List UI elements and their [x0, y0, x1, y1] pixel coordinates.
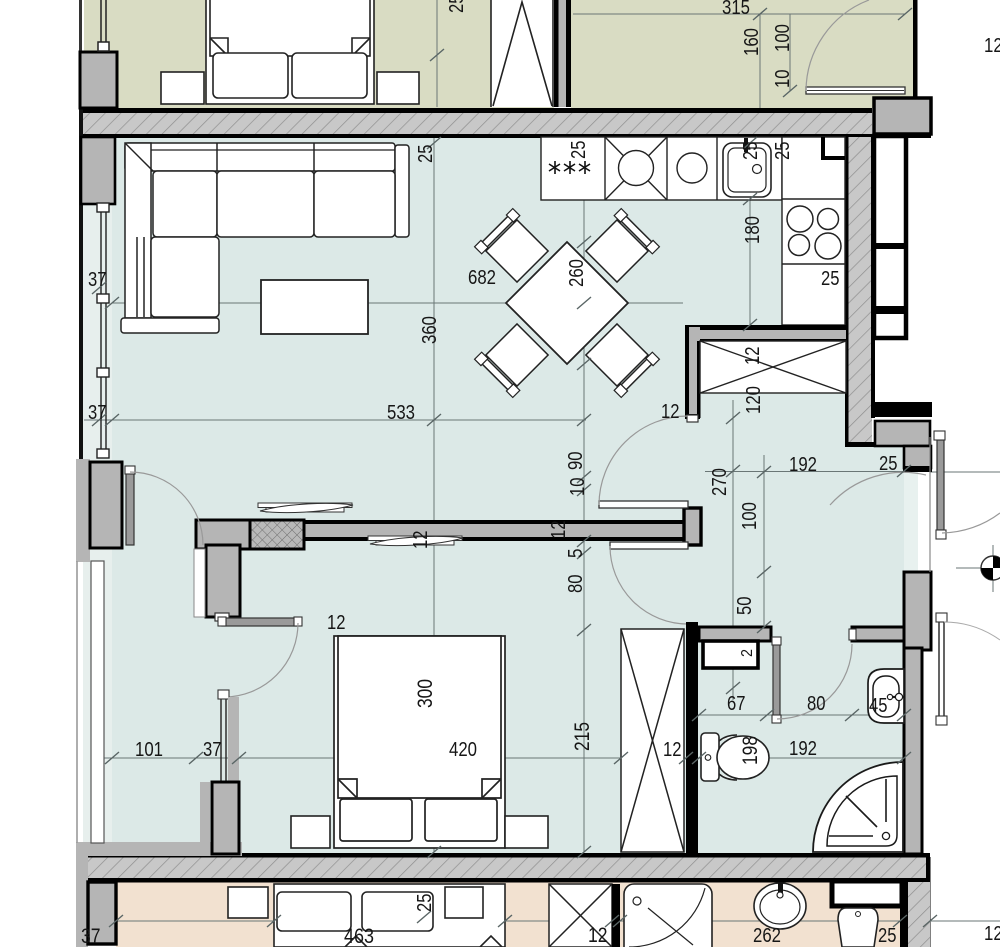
svg-text:260: 260	[566, 259, 588, 287]
svg-text:2: 2	[739, 649, 756, 657]
svg-text:25: 25	[414, 894, 436, 913]
svg-text:12: 12	[588, 924, 608, 947]
svg-text:192: 192	[789, 454, 817, 476]
svg-text:198: 198	[739, 736, 762, 765]
svg-text:25: 25	[878, 925, 897, 947]
svg-text:37: 37	[203, 739, 222, 761]
svg-text:192: 192	[789, 738, 817, 760]
svg-text:25: 25	[772, 142, 794, 161]
svg-text:25: 25	[568, 141, 590, 160]
svg-text:215: 215	[571, 722, 594, 751]
svg-text:120: 120	[743, 386, 765, 414]
svg-text:10: 10	[567, 478, 589, 497]
svg-text:50: 50	[734, 597, 756, 616]
svg-text:25: 25	[821, 268, 840, 290]
svg-text:262: 262	[753, 925, 781, 947]
svg-text:533: 533	[387, 402, 415, 424]
svg-text:12: 12	[742, 347, 764, 366]
svg-text:90: 90	[565, 452, 587, 471]
svg-text:45: 45	[869, 695, 888, 717]
svg-text:37: 37	[88, 402, 107, 424]
svg-text:37: 37	[81, 925, 101, 947]
svg-text:270: 270	[709, 468, 731, 496]
svg-text:682: 682	[468, 267, 496, 289]
svg-text:160: 160	[741, 28, 763, 56]
svg-text:12: 12	[410, 531, 432, 550]
svg-text:25: 25	[446, 0, 468, 13]
svg-text:120: 120	[984, 923, 1000, 945]
svg-text:25: 25	[740, 142, 762, 161]
svg-text:12: 12	[663, 739, 682, 761]
svg-text:100: 100	[772, 24, 794, 52]
svg-text:80: 80	[807, 693, 826, 715]
svg-text:25: 25	[879, 453, 898, 475]
svg-text:12: 12	[548, 521, 570, 540]
svg-text:10: 10	[772, 70, 794, 89]
svg-text:101: 101	[135, 739, 163, 761]
svg-text:420: 420	[449, 739, 477, 761]
svg-text:463: 463	[344, 925, 374, 947]
svg-text:12: 12	[661, 401, 680, 423]
svg-text:12: 12	[327, 612, 346, 634]
svg-text:315: 315	[722, 0, 750, 19]
svg-text:80: 80	[565, 575, 587, 594]
svg-text:100: 100	[739, 502, 761, 530]
svg-text:5: 5	[565, 549, 587, 559]
svg-text:300: 300	[414, 679, 437, 708]
svg-text:360: 360	[419, 316, 441, 344]
svg-text:37: 37	[88, 269, 107, 291]
svg-text:120: 120	[984, 35, 1000, 57]
svg-text:67: 67	[727, 693, 746, 715]
svg-text:180: 180	[742, 216, 764, 244]
svg-text:25: 25	[415, 145, 437, 164]
